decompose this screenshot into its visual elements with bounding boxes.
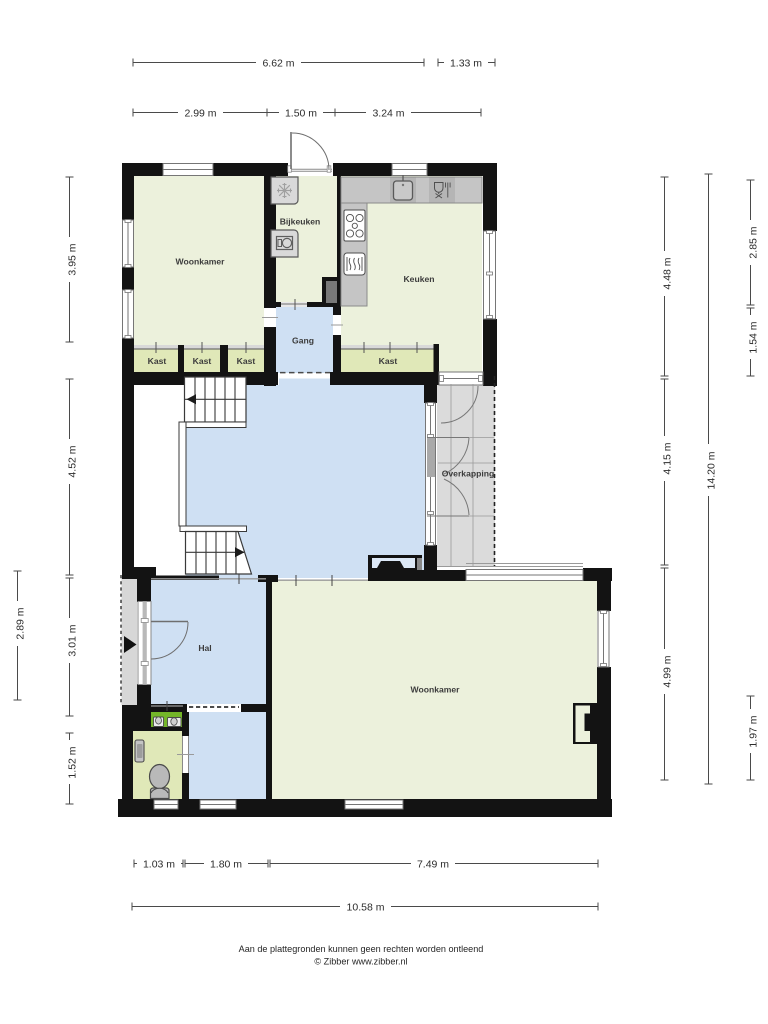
- svg-text:14.20 m: 14.20 m: [706, 451, 718, 489]
- svg-text:Woonkamer: Woonkamer: [175, 257, 225, 267]
- svg-text:Bijkeuken: Bijkeuken: [280, 217, 321, 227]
- svg-text:1.03 m: 1.03 m: [143, 859, 175, 871]
- svg-text:1.54 m: 1.54 m: [748, 321, 760, 353]
- svg-text:2.89 m: 2.89 m: [15, 607, 27, 639]
- svg-text:Overkapping: Overkapping: [442, 469, 495, 479]
- svg-text:3.01 m: 3.01 m: [67, 624, 79, 656]
- svg-text:6.62 m: 6.62 m: [262, 58, 294, 70]
- svg-text:2.99 m: 2.99 m: [184, 108, 216, 120]
- svg-text:4.15 m: 4.15 m: [662, 442, 674, 474]
- svg-text:Kast: Kast: [148, 356, 167, 366]
- svg-text:1.33 m: 1.33 m: [450, 58, 482, 70]
- svg-text:1.97 m: 1.97 m: [748, 715, 760, 747]
- svg-text:1.50 m: 1.50 m: [285, 108, 317, 120]
- svg-text:Woonkamer: Woonkamer: [410, 685, 460, 695]
- svg-text:Kast: Kast: [193, 356, 212, 366]
- svg-text:3.24 m: 3.24 m: [372, 108, 404, 120]
- svg-text:© Zibber www.zibber.nl: © Zibber www.zibber.nl: [314, 957, 407, 967]
- svg-text:7.49 m: 7.49 m: [417, 859, 449, 871]
- svg-text:Aan de plattegronden kunnen ge: Aan de plattegronden kunnen geen rechten…: [239, 944, 484, 954]
- svg-text:3.95 m: 3.95 m: [67, 243, 79, 275]
- svg-text:4.52 m: 4.52 m: [67, 445, 79, 477]
- svg-text:4.99 m: 4.99 m: [662, 655, 674, 687]
- svg-text:2.85 m: 2.85 m: [748, 226, 760, 258]
- svg-text:Keuken: Keuken: [403, 274, 434, 284]
- svg-text:Hal: Hal: [198, 643, 211, 653]
- svg-text:10.58 m: 10.58 m: [347, 902, 385, 914]
- svg-text:1.52 m: 1.52 m: [67, 746, 79, 778]
- svg-text:Gang: Gang: [292, 336, 314, 346]
- svg-text:1.80 m: 1.80 m: [210, 859, 242, 871]
- svg-text:Kast: Kast: [237, 356, 256, 366]
- svg-text:4.48 m: 4.48 m: [662, 257, 674, 289]
- svg-text:Kast: Kast: [379, 356, 398, 366]
